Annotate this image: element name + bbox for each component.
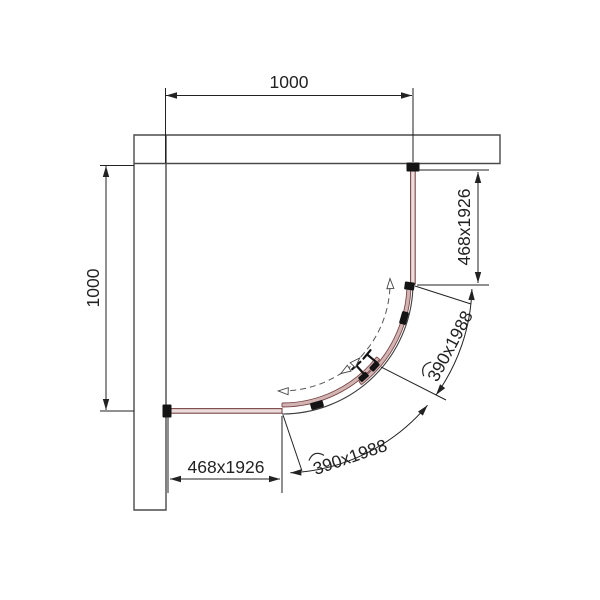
dimension-arrow-icon [103, 166, 109, 177]
door-handle-icon [364, 350, 378, 363]
wall-bracket-icon [163, 405, 172, 418]
dimension-left: 1000 [83, 166, 134, 412]
right-panel-size-label: 468x1926 [454, 189, 474, 266]
fixed-panel-bottom [171, 409, 282, 414]
roller-icon [399, 311, 409, 325]
bottom-panel-size-label: 468x1926 [188, 457, 265, 477]
slide-direction-arrow-icon [278, 387, 288, 394]
extension-lines [166, 88, 414, 163]
fixed-panel-right [411, 171, 416, 284]
shower-enclosure-plan: 1000 1000 468x1926 468x1926 [0, 0, 600, 600]
top-width-label: 1000 [270, 72, 309, 92]
dimension-arrow-icon [401, 92, 412, 98]
dimension-arrow-icon [290, 469, 301, 476]
fixed-panels [163, 163, 420, 418]
sliding-door-inner-edge [282, 359, 380, 407]
wall-corner-lines [134, 135, 166, 164]
track-bracket-icon [404, 281, 415, 290]
bottom-door-size-label: 390x1988 [310, 435, 389, 479]
sliding-path [276, 278, 394, 394]
dimension-top: 1000 [166, 72, 414, 163]
dimension-arrow-icon [269, 476, 280, 482]
dimension-arrow-icon [166, 92, 177, 98]
slide-direction-arrow-icon [387, 278, 394, 288]
dimension-right-panel: 468x1926 [417, 170, 489, 285]
dimension-arrow-icon [103, 399, 109, 410]
dimension-bottom-panel: 468x1926 [168, 416, 282, 493]
dimension-arrow-icon [475, 172, 481, 183]
dimension-arrow-icon [468, 289, 475, 300]
dimension-arrow-icon [475, 272, 481, 283]
dimension-bottom-door: 390x1988 [283, 403, 430, 479]
dimension-arrow-icon [170, 476, 181, 482]
curved-doors [282, 281, 415, 414]
plan-drawing: 1000 1000 468x1926 468x1926 [0, 0, 600, 600]
leader-lines [283, 415, 302, 471]
left-height-label: 1000 [83, 268, 103, 307]
extension-lines [168, 416, 282, 493]
wall-bracket-icon [407, 163, 420, 172]
extension-lines [100, 166, 134, 412]
